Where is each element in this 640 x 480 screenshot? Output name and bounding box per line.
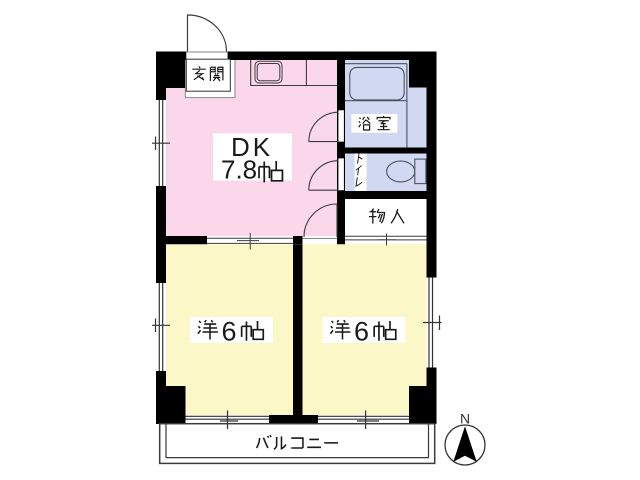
svg-text:7.8: 7.8 [221,155,257,185]
svg-text:N: N [460,411,470,427]
svg-text:6: 6 [222,317,237,347]
svg-text:6: 6 [354,317,369,347]
